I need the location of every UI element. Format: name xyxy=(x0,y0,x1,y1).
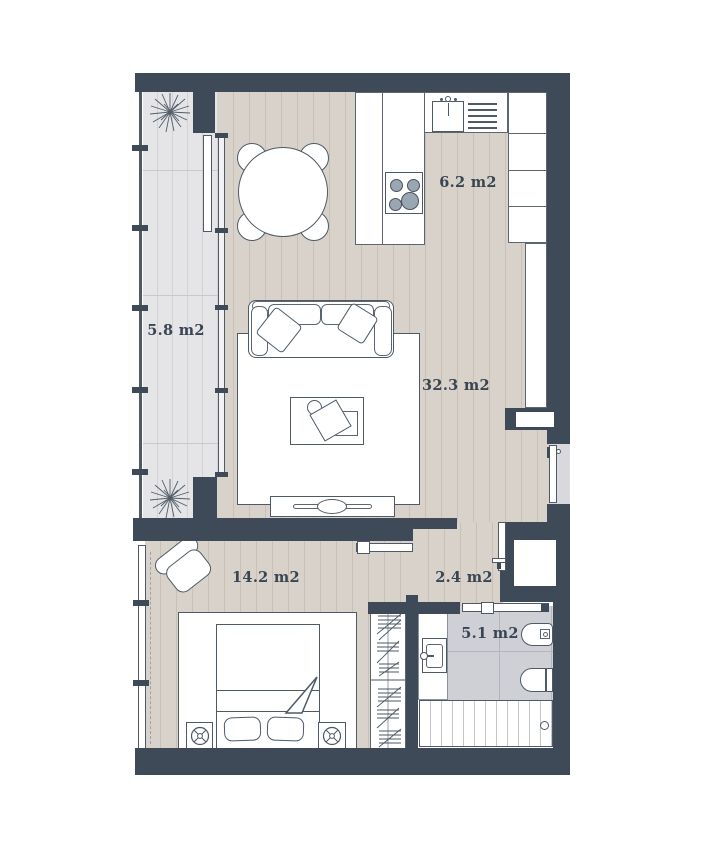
balcony-floor-joint xyxy=(143,443,218,444)
bedroom-area-label: 14.2 m2 xyxy=(228,569,304,586)
tall-closet xyxy=(525,243,547,408)
nightstand-plant-icon xyxy=(320,724,344,748)
sink-faucet xyxy=(448,103,450,116)
stove-burner xyxy=(407,179,420,192)
dining-table-icon xyxy=(238,147,328,237)
glazing-mullion xyxy=(215,133,228,138)
hall-niche xyxy=(514,540,556,586)
wall-wardrobe-bathroom xyxy=(406,595,418,750)
kitchen-counter xyxy=(382,92,425,245)
cabinet-icon xyxy=(508,92,547,134)
wall-right-upper xyxy=(547,92,570,430)
plant-icon xyxy=(148,476,192,520)
wall-living-bedroom xyxy=(133,518,457,541)
railing-post xyxy=(132,387,148,393)
wall-hall-bathroom xyxy=(368,602,460,614)
tv-icon xyxy=(317,499,347,514)
wall-top xyxy=(135,73,570,92)
wall-right-lower xyxy=(553,602,570,752)
entrance-door-icon xyxy=(549,445,557,503)
entrance-door-knob xyxy=(556,449,561,454)
railing-post xyxy=(132,225,148,231)
floor-plan: 5.8 m2 6.2 m2 32.3 m2 14.2 m2 2.4 m2 5.1… xyxy=(0,0,714,850)
dish-drainer-icon xyxy=(468,109,497,111)
basin-faucet xyxy=(427,655,434,657)
wall-right-door-head xyxy=(547,430,570,444)
glazing-pillar-top xyxy=(193,92,215,133)
sofa-armrest xyxy=(374,306,392,356)
wall-right-door-sill xyxy=(547,504,570,524)
railing-post xyxy=(132,145,148,151)
hallway-area-label: 2.4 m2 xyxy=(428,569,500,586)
bathroom-sliding-door-icon xyxy=(462,603,549,612)
window-mullion xyxy=(133,600,149,606)
kitchen-counter xyxy=(355,92,383,245)
living-room-area-label: 32.3 m2 xyxy=(418,377,494,394)
glazing-mullion xyxy=(215,228,228,233)
pillow-icon xyxy=(267,716,305,741)
bidet-icon xyxy=(520,668,553,692)
bathroom-door-cap xyxy=(541,604,549,612)
window-mullion xyxy=(133,680,149,686)
toilet-flush-dot xyxy=(543,632,548,637)
pillow-icon xyxy=(224,716,262,741)
plant-icon xyxy=(148,90,192,134)
blanket-fold-icon xyxy=(280,672,322,718)
sink-tap-dot xyxy=(454,98,457,101)
cabinet-icon xyxy=(508,170,547,207)
nightstand-plant-icon xyxy=(188,724,212,748)
glazing-mullion xyxy=(215,388,228,393)
railing-post xyxy=(132,305,148,311)
railing-post xyxy=(132,469,148,475)
sink-faucet-knob xyxy=(445,96,451,102)
wall-bottom xyxy=(135,748,570,775)
stove-burner xyxy=(390,179,403,192)
bidet-divider xyxy=(545,669,547,691)
dish-drainer-icon xyxy=(468,121,497,123)
kitchen-area-label: 6.2 m2 xyxy=(435,174,501,191)
glazing-pillar-bottom xyxy=(193,477,217,518)
balcony-area-label: 5.8 m2 xyxy=(145,322,207,339)
cabinet-icon xyxy=(508,206,547,243)
dish-drainer-icon xyxy=(468,127,497,129)
bedroom-door-handle xyxy=(357,541,370,554)
wardrobe-hangers xyxy=(370,607,406,750)
bedroom-window xyxy=(138,545,146,750)
balcony-door-leaf xyxy=(203,135,212,232)
dish-drainer-icon xyxy=(468,115,497,117)
balcony-floor-joint xyxy=(143,295,218,296)
sink-tap-dot xyxy=(440,98,443,101)
stove-burner xyxy=(389,198,402,211)
entrance-door-hinge xyxy=(547,447,550,458)
bathroom-area-label: 5.1 m2 xyxy=(454,625,526,642)
window-opening-dash xyxy=(150,552,151,744)
bathtub-drain xyxy=(540,721,549,730)
bathtub-icon xyxy=(419,700,553,747)
cabinet-icon xyxy=(508,133,547,171)
bedroom-door-opening xyxy=(413,529,457,541)
bathroom-door-handle xyxy=(481,602,494,614)
glazing-mullion xyxy=(215,305,228,310)
stove-burner xyxy=(401,192,419,210)
dish-drainer-icon xyxy=(468,103,497,105)
utility-niche xyxy=(516,412,554,427)
